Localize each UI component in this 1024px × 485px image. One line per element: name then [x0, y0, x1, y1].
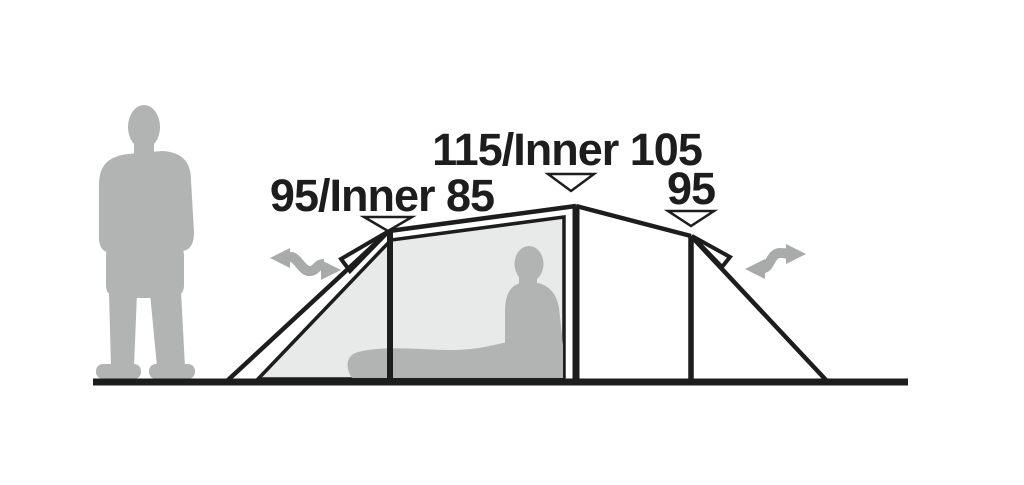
silhouette-left-leg — [109, 292, 137, 367]
center-height-label: 115/Inner 105 — [432, 124, 702, 175]
diagram-canvas: 95/Inner 85 115/Inner 105 95 — [0, 0, 1024, 485]
left-entrance-arrow-icon — [270, 248, 341, 280]
silhouette-right-foot — [149, 364, 195, 379]
center-dimension-pointer-triangle-icon — [548, 174, 594, 191]
right-fly-slope-line — [691, 236, 826, 380]
silhouette-hips — [106, 243, 184, 298]
seated-torso — [505, 282, 563, 378]
silhouette-left-foot — [96, 364, 141, 379]
right-height-label: 95 — [667, 163, 715, 214]
right-entrance-arrow-icon — [745, 244, 806, 279]
silhouette-right-leg — [150, 291, 185, 367]
silhouette-torso — [99, 151, 194, 253]
tent-dimensions-diagram: 95/Inner 85 115/Inner 105 95 — [0, 0, 1024, 485]
left-height-label: 95/Inner 85 — [270, 170, 494, 221]
standing-person-silhouette — [96, 105, 195, 379]
